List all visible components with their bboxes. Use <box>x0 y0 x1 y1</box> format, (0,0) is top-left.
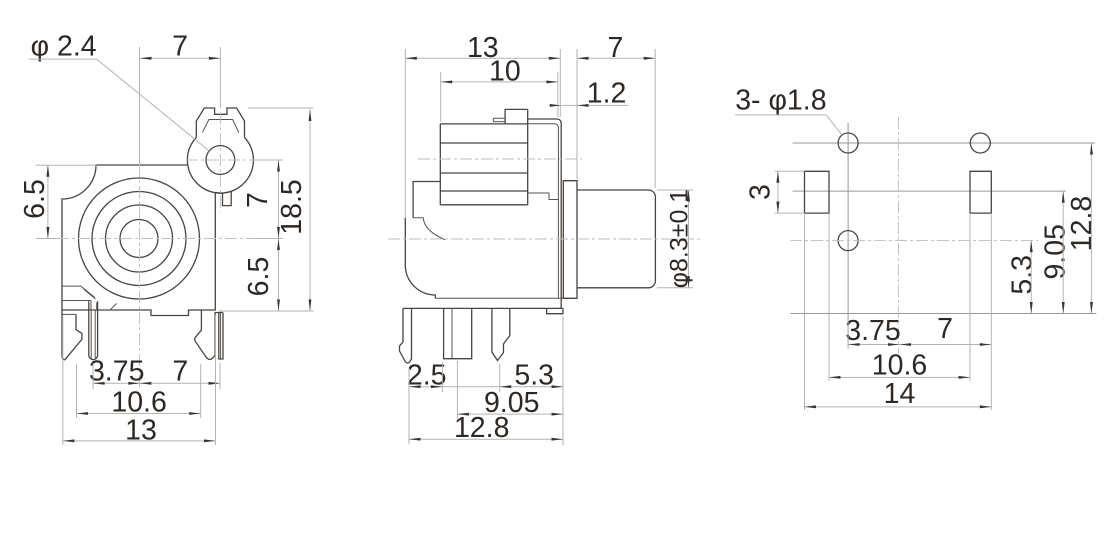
svg-text:3.75: 3.75 <box>845 315 900 347</box>
svg-text:7: 7 <box>172 356 188 388</box>
svg-text:6.5: 6.5 <box>243 257 275 297</box>
svg-text:6.5: 6.5 <box>19 179 51 219</box>
svg-text:7: 7 <box>242 192 274 208</box>
svg-text:5.3: 5.3 <box>1007 255 1039 295</box>
svg-text:18.5: 18.5 <box>276 179 308 234</box>
svg-text:13: 13 <box>125 415 157 447</box>
svg-text:7: 7 <box>607 32 623 64</box>
svg-text:10.6: 10.6 <box>872 350 927 382</box>
svg-text:3- φ1.8: 3- φ1.8 <box>735 85 826 117</box>
svg-text:10: 10 <box>489 55 521 87</box>
svg-text:1.2: 1.2 <box>587 78 627 110</box>
svg-text:φ8.3±0.1: φ8.3±0.1 <box>666 189 694 288</box>
svg-text:3: 3 <box>745 184 777 200</box>
svg-text:14: 14 <box>884 378 916 410</box>
svg-text:9.05: 9.05 <box>1040 224 1072 279</box>
svg-text:φ 2.4: φ 2.4 <box>31 31 97 63</box>
svg-text:7: 7 <box>937 313 953 345</box>
